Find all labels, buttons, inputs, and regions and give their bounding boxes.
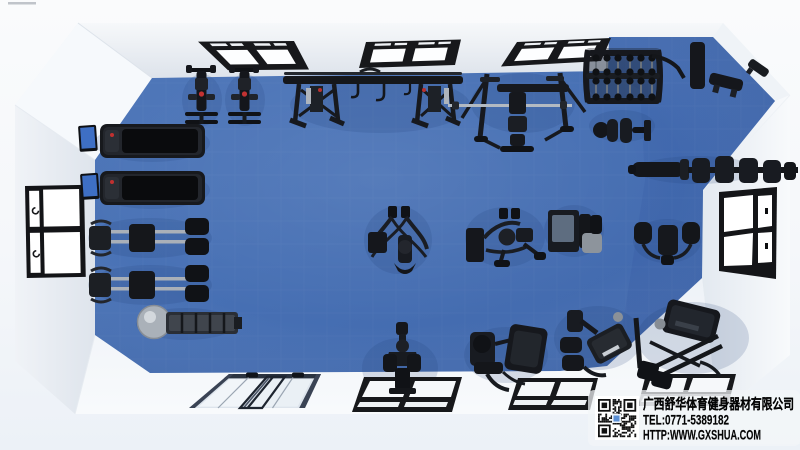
svg-text:HTTP:WWW.GXSHUA.COM: HTTP:WWW.GXSHUA.COM bbox=[643, 427, 761, 443]
svg-text:广西舒华体育健身器材有限公司: 广西舒华体育健身器材有限公司 bbox=[643, 396, 794, 412]
svg-text:TEL:0771-5389182: TEL:0771-5389182 bbox=[643, 412, 729, 428]
